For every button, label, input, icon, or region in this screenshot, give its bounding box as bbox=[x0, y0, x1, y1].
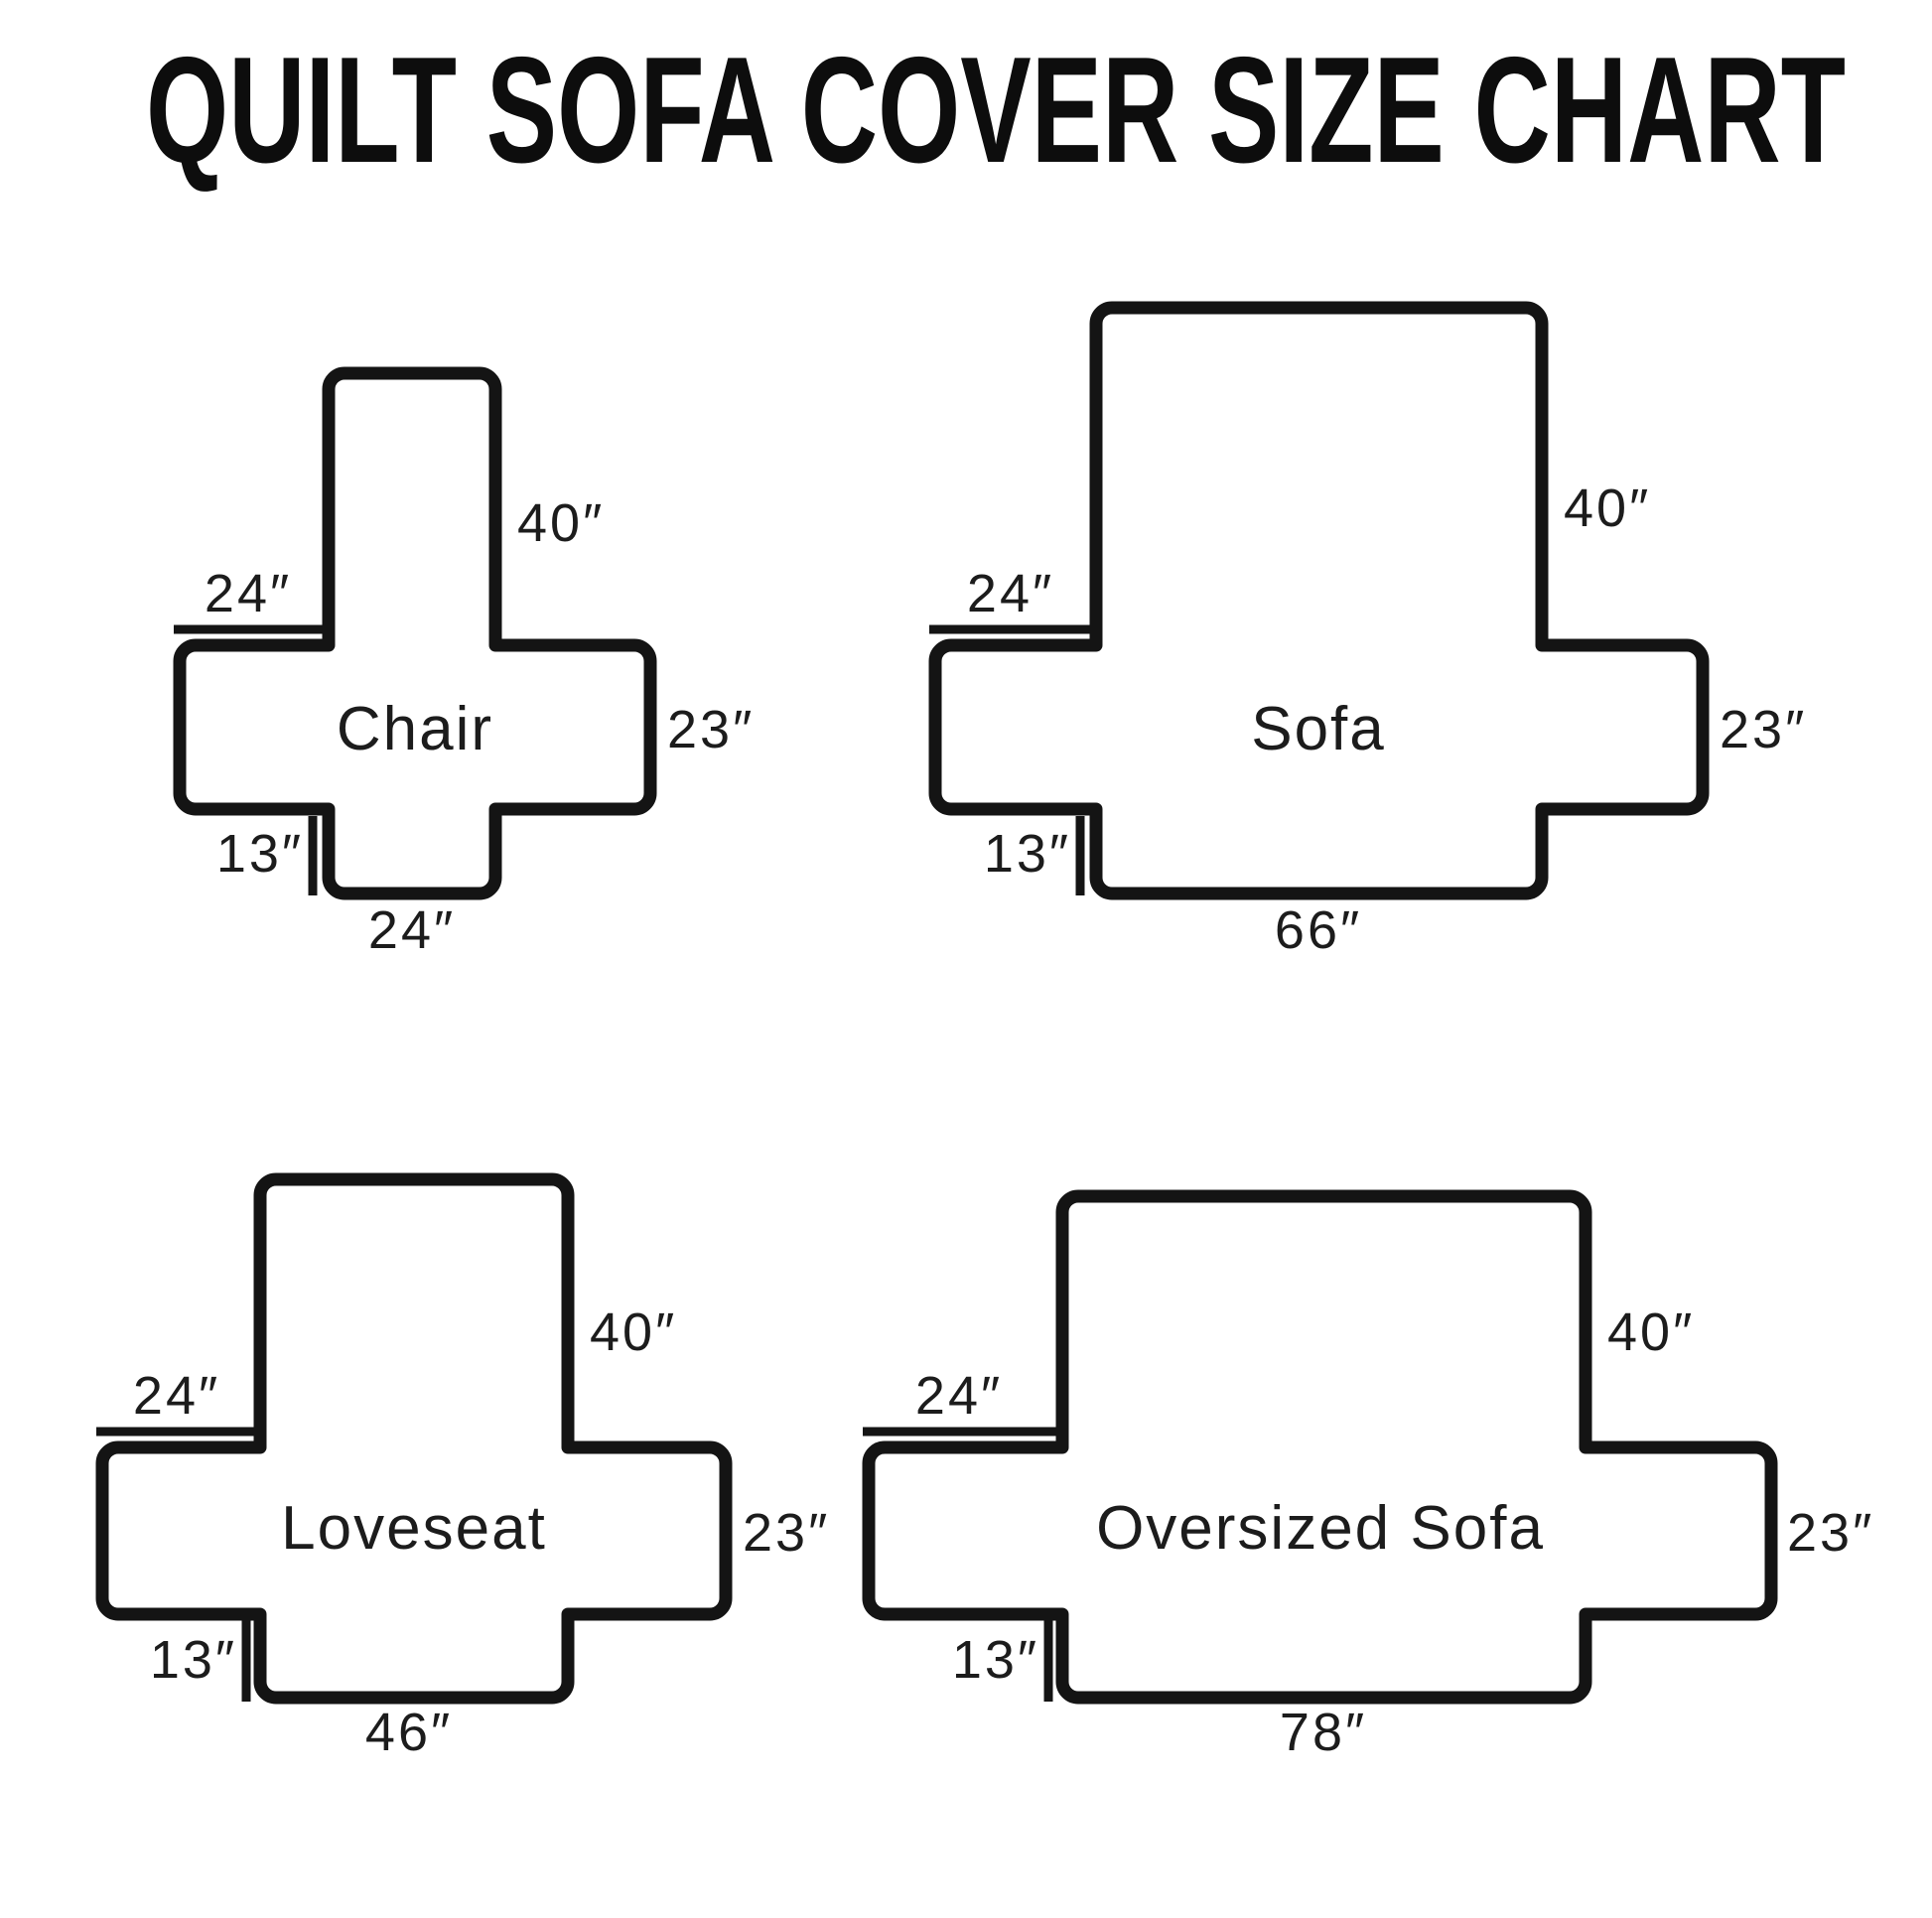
sofa-diagram: 24″ 40″ 23″ 13″ Sofa 66″ bbox=[929, 308, 1807, 960]
sofa-bottom-dim-label: 66″ bbox=[1275, 900, 1362, 960]
loveseat-back-dim-label: 40″ bbox=[590, 1302, 677, 1362]
chair-bottom-dim-label: 24″ bbox=[368, 900, 456, 960]
loveseat-bottom-dim-label: 46″ bbox=[365, 1703, 453, 1762]
sofa-name-label: Sofa bbox=[1251, 695, 1386, 763]
chair-name-label: Chair bbox=[337, 695, 493, 763]
sofa-front-dim-label: 13″ bbox=[984, 824, 1071, 884]
oversized-sofa-bottom-dim-label: 78″ bbox=[1280, 1703, 1367, 1762]
oversized-sofa-name-label: Oversized Sofa bbox=[1096, 1494, 1545, 1563]
oversized-sofa-side-dim-label: 23″ bbox=[1787, 1503, 1874, 1563]
oversized-sofa-outline bbox=[869, 1196, 1771, 1698]
sofa-side-dim-label: 23″ bbox=[1720, 700, 1807, 759]
loveseat-side-dim-label: 23″ bbox=[743, 1503, 830, 1563]
chair-diagram: 24″ 40″ 23″ 13″ Chair 24″ bbox=[174, 373, 755, 960]
chair-front-dim-label: 13″ bbox=[216, 824, 304, 884]
chair-arm-dim-label: 24″ bbox=[205, 564, 292, 623]
chair-side-dim-label: 23″ bbox=[667, 700, 755, 759]
loveseat-name-label: Loveseat bbox=[281, 1494, 547, 1563]
oversized-sofa-front-dim-label: 13″ bbox=[952, 1630, 1039, 1690]
size-chart-canvas: QUILT SOFA COVER SIZE CHART 24″ 40″ 23″ … bbox=[0, 0, 1932, 1918]
page-title: QUILT SOFA COVER SIZE CHART bbox=[146, 26, 1846, 195]
loveseat-front-dim-label: 13″ bbox=[150, 1630, 237, 1690]
loveseat-diagram: 24″ 40″ 23″ 13″ Loveseat 46″ bbox=[96, 1179, 830, 1762]
chair-back-dim-label: 40″ bbox=[517, 493, 605, 553]
sofa-arm-dim-label: 24″ bbox=[967, 564, 1054, 623]
oversized-sofa-arm-dim-label: 24″ bbox=[915, 1366, 1003, 1426]
oversized-sofa-back-dim-label: 40″ bbox=[1607, 1302, 1695, 1362]
oversized-sofa-diagram: 24″ 40″ 23″ 13″ Oversized Sofa 78″ bbox=[863, 1196, 1874, 1762]
loveseat-arm-dim-label: 24″ bbox=[133, 1366, 220, 1426]
loveseat-outline bbox=[102, 1179, 726, 1698]
sofa-back-dim-label: 40″ bbox=[1564, 479, 1651, 538]
